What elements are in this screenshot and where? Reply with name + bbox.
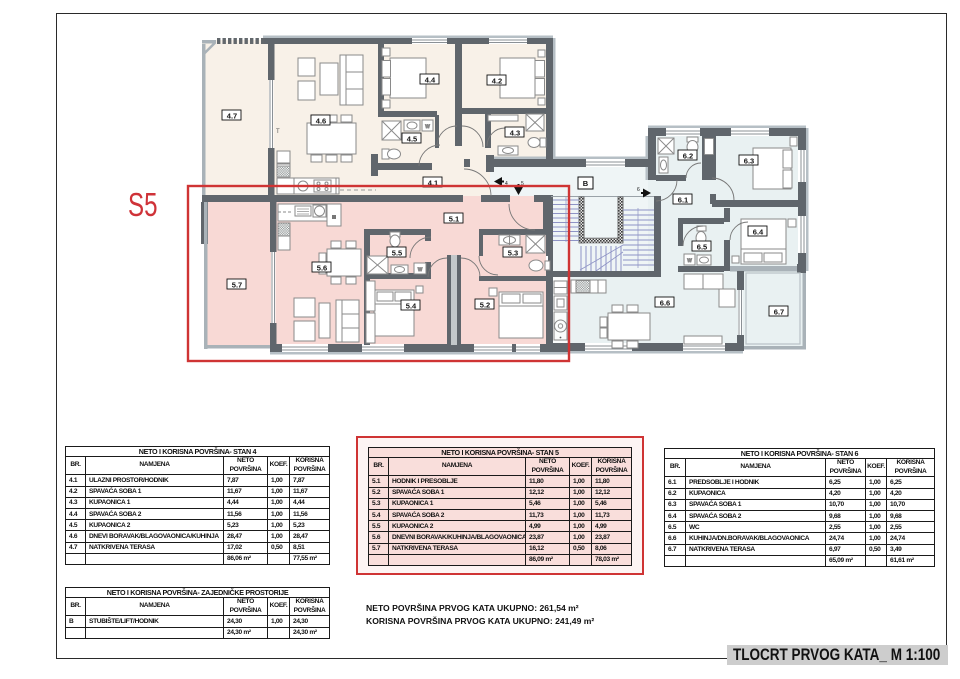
svg-text:6: 6	[637, 187, 640, 193]
svg-text:6.2: 6.2	[683, 152, 693, 161]
svg-text:6.6: 6.6	[660, 299, 670, 308]
svg-text:4.4: 4.4	[425, 76, 436, 85]
svg-text:6.4: 6.4	[753, 228, 764, 237]
svg-text:6.5: 6.5	[697, 243, 707, 252]
svg-text:5.3: 5.3	[508, 249, 518, 258]
svg-text:4.7: 4.7	[227, 112, 237, 121]
svg-text:5.1: 5.1	[449, 215, 459, 224]
svg-text:6.7: 6.7	[774, 308, 784, 317]
svg-text:w: w	[417, 267, 423, 273]
svg-text:4.5: 4.5	[407, 135, 417, 144]
svg-text:B: B	[583, 179, 589, 188]
svg-text:T: T	[276, 129, 280, 135]
svg-text:5.5: 5.5	[392, 249, 402, 258]
svg-text:w: w	[424, 124, 430, 130]
svg-text:4.3: 4.3	[510, 129, 520, 138]
svg-text:w: w	[686, 258, 692, 264]
svg-text:5.4: 5.4	[406, 302, 417, 311]
svg-text:6.1: 6.1	[678, 196, 688, 205]
svg-text:4.6: 4.6	[316, 117, 326, 126]
svg-text:5.7: 5.7	[232, 281, 242, 290]
svg-text:6.3: 6.3	[744, 157, 754, 166]
svg-text:4.2: 4.2	[492, 77, 502, 86]
svg-text:5.2: 5.2	[480, 301, 490, 310]
svg-text:5.6: 5.6	[317, 264, 327, 273]
